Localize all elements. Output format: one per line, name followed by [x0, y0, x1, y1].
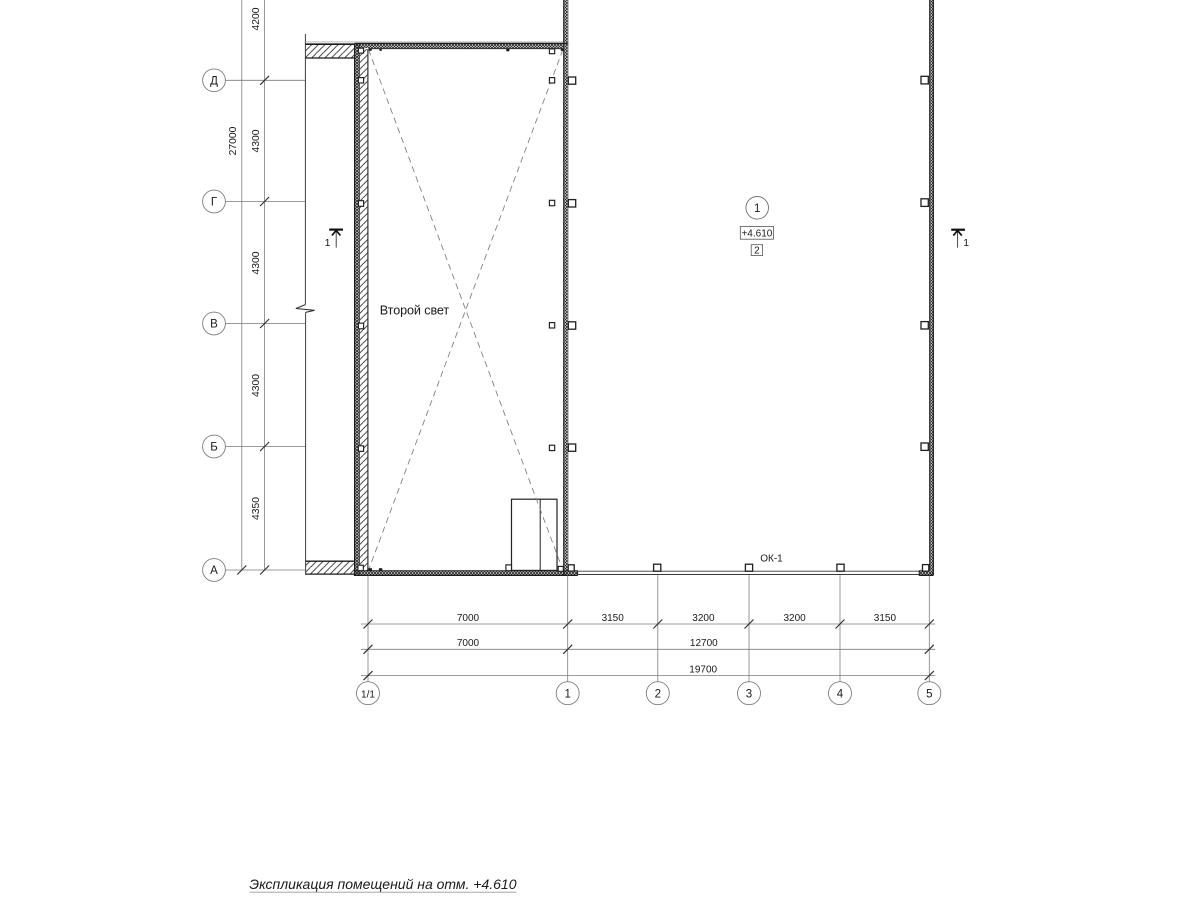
svg-text:7000: 7000	[457, 638, 480, 649]
svg-text:1: 1	[564, 688, 570, 700]
svg-text:Д: Д	[210, 75, 218, 87]
svg-text:4350: 4350	[251, 497, 262, 520]
svg-text:А: А	[210, 565, 218, 577]
svg-text:5: 5	[926, 688, 932, 700]
svg-text:3150: 3150	[602, 613, 625, 624]
svg-text:Б: Б	[210, 442, 218, 454]
svg-text:1: 1	[325, 237, 331, 249]
svg-text:4200: 4200	[251, 7, 262, 30]
svg-text:1/1: 1/1	[361, 689, 375, 700]
svg-text:2: 2	[754, 246, 760, 257]
svg-text:3200: 3200	[692, 613, 715, 624]
svg-text:27000: 27000	[228, 126, 239, 155]
svg-text:1: 1	[963, 237, 969, 249]
svg-text:Г: Г	[211, 197, 218, 209]
svg-text:19700: 19700	[689, 665, 717, 676]
svg-text:4300: 4300	[251, 374, 262, 397]
svg-text:ОК-1: ОК-1	[760, 554, 783, 565]
svg-text:2: 2	[655, 688, 661, 700]
svg-text:4300: 4300	[251, 129, 262, 152]
svg-text:3150: 3150	[874, 613, 897, 624]
svg-text:Второй свет: Второй свет	[380, 303, 450, 317]
svg-text:4: 4	[837, 688, 844, 700]
svg-text:12700: 12700	[690, 638, 718, 649]
svg-text:+4.610: +4.610	[741, 228, 772, 239]
svg-text:3200: 3200	[783, 613, 806, 624]
svg-text:1: 1	[754, 203, 760, 215]
svg-text:4300: 4300	[251, 251, 262, 274]
svg-text:Экспликация помещений на отм.: Экспликация помещений на отм. +4.610	[249, 876, 516, 892]
svg-text:7000: 7000	[457, 613, 480, 624]
svg-text:3: 3	[746, 688, 752, 700]
svg-text:В: В	[210, 319, 218, 331]
